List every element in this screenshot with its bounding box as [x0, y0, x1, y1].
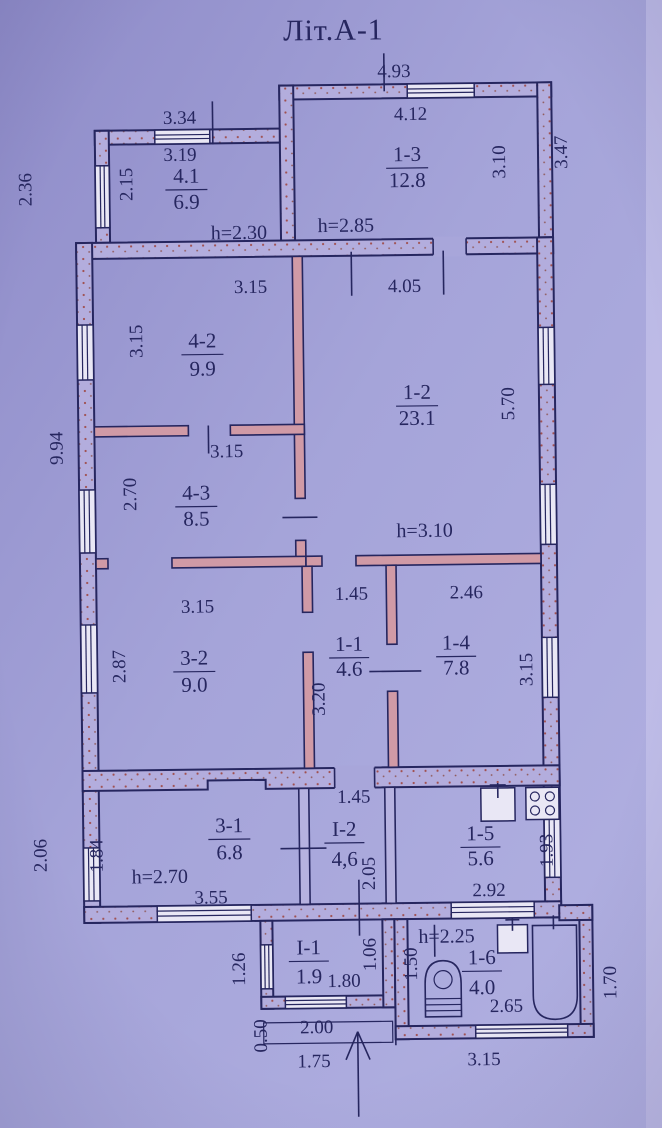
photo-vignette	[0, 0, 662, 1128]
floor-plan-svg: 4.16.9 1-312.8 4-29.9 1-223.1 4-38.5 3-2…	[0, 0, 662, 1128]
floor-plan-photo: 4.16.9 1-312.8 4-29.9 1-223.1 4-38.5 3-2…	[0, 0, 662, 1128]
